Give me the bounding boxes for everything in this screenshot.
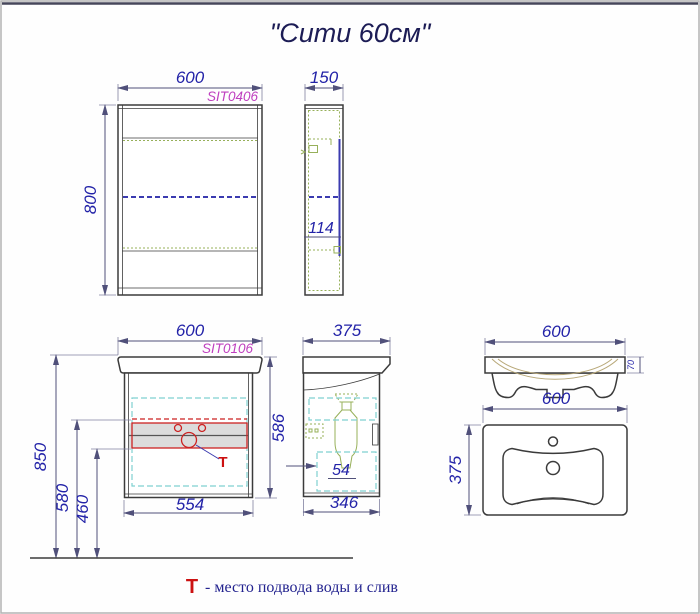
vanity-height-dim: 586 (255, 357, 288, 498)
dim-mirror-height: 800 (81, 185, 100, 214)
dim-supply-bottom: 460 (73, 494, 92, 523)
dim-clearance: 54 (332, 462, 350, 479)
legend: T - место подвода воды и слив (186, 576, 399, 598)
vanity-product-code: SIT0106 (202, 341, 254, 356)
dim-sink-width: 600 (542, 322, 571, 341)
mirror-front-view: 600 800 SIT0406 (81, 68, 262, 295)
vanity-depth-dim: 375 (303, 321, 390, 355)
sink-rim (485, 357, 625, 373)
dim-mirror-depth: 150 (310, 68, 339, 87)
vanity-sink-profile (118, 357, 262, 373)
supply-top-dim: 580 (53, 420, 131, 558)
dim-mount-height: 850 (31, 442, 50, 471)
legend-text: - место подвода воды и слив (205, 579, 398, 596)
sink-front-width-dim: 600 (485, 322, 625, 355)
mirror-product-code: SIT0406 (207, 89, 259, 104)
dim-vanity-bottom-width: 554 (176, 495, 204, 514)
vanity-side-sink-profile (303, 357, 390, 373)
mirror-side-view: 150 114 (301, 68, 343, 295)
technical-drawing: "Сити 60см" 600 800 (0, 0, 700, 614)
dim-sink-top-depth: 375 (446, 455, 465, 484)
drawing-sheet: "Сити 60см" 600 800 (0, 0, 700, 614)
dim-supply-top: 580 (53, 483, 72, 512)
legend-symbol: T (186, 576, 198, 598)
mirror-side-body (305, 105, 343, 295)
mirror-side-width-dim: 150 (305, 68, 343, 101)
sink-top-depth-dim: 375 (446, 425, 481, 515)
mirror-front-body (118, 105, 262, 295)
dim-vanity-width: 600 (176, 321, 205, 340)
supply-bottom-dim: 460 (73, 449, 131, 558)
dim-sink-top-width: 600 (542, 389, 571, 408)
dim-rim-height: 70 (626, 360, 636, 370)
dim-mirror-width: 600 (176, 68, 205, 87)
sink-top-view: 600 375 (446, 389, 627, 515)
dim-vanity-bottom-depth: 346 (330, 493, 359, 512)
vanity-bottom-width-dim: 554 (124, 495, 253, 517)
mirror-front-height-dim: 800 (81, 105, 116, 295)
mount-height-dim: 850 (31, 355, 118, 558)
sink-front-view: 600 70 (485, 322, 644, 398)
sheet-border (1, 1, 699, 613)
dim-vanity-height: 586 (269, 413, 288, 442)
rim-height-dim: 70 (626, 357, 644, 373)
page-title: "Сити 60см" (270, 18, 432, 48)
supply-symbol: T (218, 454, 227, 471)
dim-vanity-depth: 375 (333, 321, 362, 340)
vanity-side-view: 375 54 346 (286, 321, 390, 516)
dim-mirror-inner: 114 (308, 220, 334, 237)
